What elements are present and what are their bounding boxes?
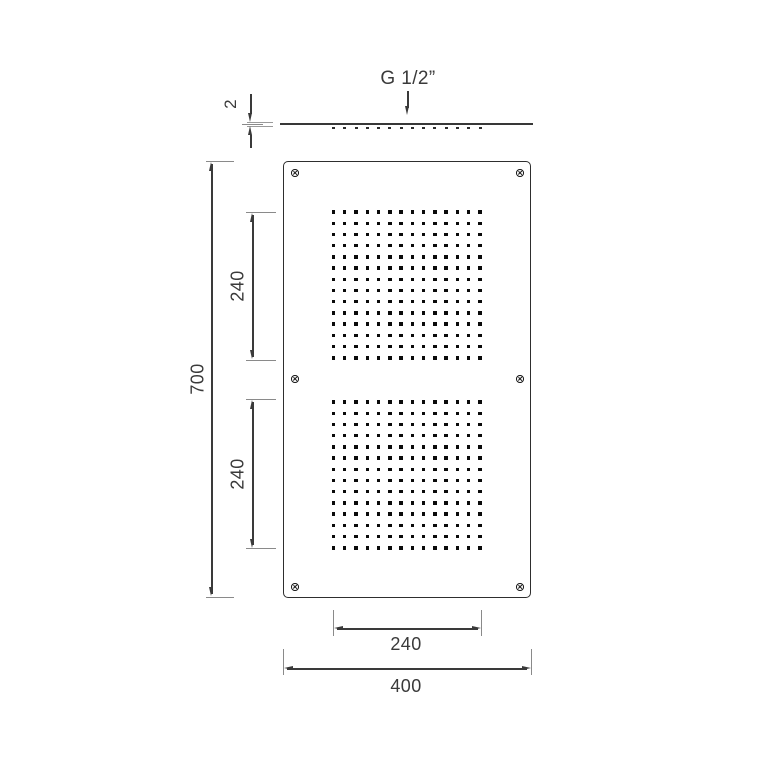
perforation-dot (377, 412, 380, 415)
perforation-dot (332, 222, 335, 225)
perforation-dot (433, 356, 436, 359)
perforation-dot (422, 300, 425, 303)
thickness-arrow-down-icon (248, 113, 252, 122)
perforation-dot (354, 210, 357, 213)
perforation-dot (354, 311, 357, 314)
perforation-dot (478, 479, 481, 482)
perforation-dot (354, 233, 357, 236)
perforation-dot (411, 512, 414, 515)
panel-bottom-tick-lower (246, 548, 276, 549)
panel-top-tick-lower (246, 360, 276, 361)
perforation-dot (467, 255, 470, 258)
height-arrow-down-icon (209, 587, 213, 596)
perforation-dot (377, 479, 380, 482)
perforation-dot (388, 345, 391, 348)
perforation-dot (433, 535, 436, 538)
perforation-dot (377, 490, 380, 493)
perforation-dot (456, 479, 459, 482)
perforation-dash (366, 127, 369, 129)
perforation-dot (444, 423, 447, 426)
perforation-dot (411, 501, 414, 504)
perforation-dot (444, 322, 447, 325)
perforation-dot (433, 468, 436, 471)
perforation-dot (467, 490, 470, 493)
perforation-dot (433, 490, 436, 493)
perforation-dot (422, 479, 425, 482)
perforation-dot (467, 289, 470, 292)
perforation-dot (354, 289, 357, 292)
perforation-dot (433, 278, 436, 281)
perforation-dot (377, 222, 380, 225)
perforation-dot (433, 334, 436, 337)
perforation-dash (445, 127, 448, 129)
panel-width-arrow-left-icon (334, 626, 343, 630)
perforation-dot (343, 434, 346, 437)
perforation-dot (467, 345, 470, 348)
perforation-dot (411, 334, 414, 337)
perforation-dot (456, 334, 459, 337)
perforation-dot (433, 210, 436, 213)
perforation-dot (332, 244, 335, 247)
perforation-dash (355, 127, 358, 129)
perforation-grid-bottom (332, 400, 482, 549)
perforation-dot (399, 311, 402, 314)
perforation-dot (467, 300, 470, 303)
perforation-dot (433, 546, 436, 549)
perforation-dot (478, 278, 481, 281)
perforation-dot (399, 456, 402, 459)
perforation-dot (478, 334, 481, 337)
perforation-dot (399, 524, 402, 527)
perforation-dot (422, 512, 425, 515)
perforation-dot (456, 322, 459, 325)
perforation-dot (478, 535, 481, 538)
perforation-dot (388, 255, 391, 258)
panel-width-arrow-right-icon (472, 626, 481, 630)
perforation-dot (399, 289, 402, 292)
perforation-dot (343, 468, 346, 471)
perforation-dot (444, 412, 447, 415)
perforation-dot (388, 412, 391, 415)
total-width-arrow-left-icon (284, 666, 293, 670)
perforation-dot (399, 210, 402, 213)
perforation-dash (422, 127, 425, 129)
screw-icon (291, 375, 299, 383)
perforation-dot (343, 266, 346, 269)
perforation-dot (354, 468, 357, 471)
perforation-dot (343, 233, 346, 236)
perforation-dot (388, 490, 391, 493)
perforation-dot (411, 400, 414, 403)
perforation-dot (433, 400, 436, 403)
perforation-dot (332, 278, 335, 281)
perforation-dot (399, 445, 402, 448)
perforation-dot (456, 512, 459, 515)
perforation-dot (399, 322, 402, 325)
perforation-dash (377, 127, 380, 129)
perforation-dot (478, 311, 481, 314)
perforation-dot (467, 512, 470, 515)
perforation-dot (377, 311, 380, 314)
perforation-dot (411, 456, 414, 459)
perforation-dot (456, 535, 459, 538)
perforation-dot (332, 512, 335, 515)
height-extension-tick-bottom (206, 597, 234, 598)
perforation-dot (343, 479, 346, 482)
perforation-dot (422, 311, 425, 314)
panel-top-height-label: 240 (228, 270, 249, 301)
perforation-dot (478, 289, 481, 292)
perforation-dot (467, 311, 470, 314)
perforation-dot (444, 255, 447, 258)
perforation-dot (399, 479, 402, 482)
perforation-dot (478, 300, 481, 303)
perforation-dot (422, 423, 425, 426)
perforation-dot (354, 501, 357, 504)
perforation-dot (467, 479, 470, 482)
perforation-dot (366, 535, 369, 538)
perforation-dot (411, 210, 414, 213)
perforation-dot (433, 501, 436, 504)
perforation-dot (467, 400, 470, 403)
perforation-dot (388, 456, 391, 459)
perforation-dot (456, 445, 459, 448)
thickness-dim-line-lower (250, 135, 251, 148)
perforation-dot (467, 356, 470, 359)
perforation-dot (478, 345, 481, 348)
thread-size-label: G 1/2” (380, 68, 435, 90)
perforation-dot (411, 222, 414, 225)
perforation-dot (366, 345, 369, 348)
perforation-dash (433, 127, 436, 129)
perforation-dot (467, 278, 470, 281)
perforation-dot (456, 278, 459, 281)
perforation-dot (444, 356, 447, 359)
perforation-dot (377, 266, 380, 269)
total-height-label: 700 (188, 363, 209, 394)
perforation-dot (444, 233, 447, 236)
perforation-dot (467, 456, 470, 459)
perforation-dot (354, 546, 357, 549)
perforation-dot (467, 233, 470, 236)
perforation-dot (444, 434, 447, 437)
perforation-dot (388, 244, 391, 247)
perforation-dot (366, 210, 369, 213)
perforation-dot (433, 423, 436, 426)
perforation-dot (444, 345, 447, 348)
perforation-dot (354, 400, 357, 403)
thread-leader-arrow-icon (405, 106, 409, 115)
perforation-dot (456, 400, 459, 403)
perforation-dot (444, 512, 447, 515)
perforation-dot (399, 255, 402, 258)
perforation-dot (343, 400, 346, 403)
total-width-label: 400 (390, 676, 421, 697)
perforation-dot (377, 278, 380, 281)
perforation-dot (377, 468, 380, 471)
perforation-dot (343, 334, 346, 337)
perforation-dot (456, 233, 459, 236)
perforation-dot (456, 345, 459, 348)
perforation-dot (433, 479, 436, 482)
perforation-dot (456, 289, 459, 292)
perforation-dot (444, 311, 447, 314)
perforation-dot (343, 546, 346, 549)
perforation-dot (377, 244, 380, 247)
perforation-dot (366, 356, 369, 359)
perforation-dot (354, 456, 357, 459)
perforation-dot (377, 546, 380, 549)
perforation-dot (411, 468, 414, 471)
perforation-dot (332, 546, 335, 549)
perforation-dot (377, 423, 380, 426)
perforation-dot (456, 456, 459, 459)
perforation-dot (366, 445, 369, 448)
perforation-dot (411, 423, 414, 426)
perforation-dot (366, 479, 369, 482)
perforation-dot (343, 535, 346, 538)
perforation-dot (366, 244, 369, 247)
perforation-dot (343, 300, 346, 303)
perforation-dot (388, 400, 391, 403)
panel-top-arrow-down-icon (250, 350, 254, 359)
panel-width-dim-line (337, 628, 478, 629)
perforation-dot (478, 244, 481, 247)
perforation-dot (354, 278, 357, 281)
perforation-dot (444, 546, 447, 549)
perforation-dot (366, 289, 369, 292)
perforation-dot (354, 356, 357, 359)
perforation-dot (366, 334, 369, 337)
perforation-dot (467, 423, 470, 426)
perforation-dot (332, 479, 335, 482)
perforation-dot (366, 468, 369, 471)
perforation-dot (433, 345, 436, 348)
perforation-dot (433, 322, 436, 325)
perforation-dot (456, 524, 459, 527)
screw-icon (516, 583, 524, 591)
perforation-dot (399, 423, 402, 426)
perforation-dot (422, 468, 425, 471)
perforation-dot (411, 490, 414, 493)
technical-drawing: G 1/2” 2 (0, 0, 772, 760)
perforation-dot (377, 501, 380, 504)
perforation-dot (433, 244, 436, 247)
perforation-dot (377, 356, 380, 359)
perforation-dot (366, 412, 369, 415)
perforation-dot (444, 501, 447, 504)
perforation-dot (444, 535, 447, 538)
perforation-dot (332, 412, 335, 415)
perforation-dot (388, 512, 391, 515)
perforation-dot (377, 445, 380, 448)
perforation-dot (456, 255, 459, 258)
perforation-dot (366, 222, 369, 225)
perforation-dot (332, 334, 335, 337)
perforation-dot (332, 300, 335, 303)
perforation-dot (467, 468, 470, 471)
perforation-dot (377, 210, 380, 213)
perforation-dot (444, 334, 447, 337)
perforation-dot (366, 233, 369, 236)
perforation-dot (332, 490, 335, 493)
perforation-dot (332, 468, 335, 471)
perforation-dot (332, 400, 335, 403)
perforation-dot (422, 345, 425, 348)
perforation-dot (399, 300, 402, 303)
total-width-dim-line (287, 668, 527, 669)
perforation-dot (433, 412, 436, 415)
perforation-dot (456, 501, 459, 504)
perforation-dot (444, 300, 447, 303)
perforation-dot (411, 244, 414, 247)
panel-top-dim-line (252, 215, 253, 357)
perforation-dot (388, 233, 391, 236)
perforation-dot (332, 289, 335, 292)
perforation-dot (388, 445, 391, 448)
perforation-dot (377, 334, 380, 337)
perforation-dot (433, 266, 436, 269)
perforation-dot (456, 546, 459, 549)
perforation-dot (467, 445, 470, 448)
perforation-dot (388, 278, 391, 281)
perforation-dot (343, 278, 346, 281)
perforation-dot (422, 255, 425, 258)
perforation-dot (422, 289, 425, 292)
panel-bottom-height-label: 240 (228, 458, 249, 489)
perforation-dash (400, 127, 403, 129)
perforation-dot (478, 400, 481, 403)
perforation-dot (399, 501, 402, 504)
perforation-dot (411, 434, 414, 437)
perforation-dot (377, 289, 380, 292)
perforation-dot (422, 233, 425, 236)
perforation-dashes (332, 127, 482, 130)
perforation-dot (411, 445, 414, 448)
perforation-dot (377, 345, 380, 348)
perforation-dot (343, 490, 346, 493)
thickness-extension-tick (242, 124, 263, 125)
perforation-dot (478, 266, 481, 269)
perforation-dot (354, 300, 357, 303)
perforation-dot (388, 210, 391, 213)
perforation-dot (399, 266, 402, 269)
perforation-dot (444, 479, 447, 482)
perforation-dot (343, 311, 346, 314)
perforation-dot (377, 322, 380, 325)
perforation-dot (388, 501, 391, 504)
perforation-dot (343, 501, 346, 504)
perforation-dot (456, 300, 459, 303)
perforation-dot (343, 210, 346, 213)
perforation-dot (366, 501, 369, 504)
perforation-dot (411, 345, 414, 348)
perforation-dot (478, 322, 481, 325)
perforation-dot (399, 278, 402, 281)
perforation-dot (399, 334, 402, 337)
perforation-dot (478, 412, 481, 415)
perforation-dot (422, 210, 425, 213)
perforation-dot (377, 400, 380, 403)
perforation-dot (467, 266, 470, 269)
perforation-dot (343, 423, 346, 426)
perforation-dot (456, 423, 459, 426)
panel-bottom-dim-line (252, 402, 253, 545)
perforation-dot (332, 266, 335, 269)
perforation-dot (366, 300, 369, 303)
perforation-dot (444, 445, 447, 448)
perforation-dot (433, 233, 436, 236)
perforation-dot (422, 278, 425, 281)
perforation-dot (399, 222, 402, 225)
perforation-dot (377, 300, 380, 303)
perforation-dot (332, 356, 335, 359)
perforation-dot (478, 456, 481, 459)
perforation-dot (399, 412, 402, 415)
perforation-dot (433, 456, 436, 459)
perforation-dot (366, 400, 369, 403)
perforation-dot (444, 210, 447, 213)
perforation-dot (467, 322, 470, 325)
perforation-dot (478, 501, 481, 504)
perforation-dot (354, 524, 357, 527)
perforation-dot (343, 222, 346, 225)
perforation-dot (332, 501, 335, 504)
perforation-dot (343, 345, 346, 348)
panel-width-tick-left (333, 610, 334, 636)
perforation-dot (422, 322, 425, 325)
total-width-arrow-right-icon (522, 666, 531, 670)
perforation-dot (388, 311, 391, 314)
perforation-dot (354, 535, 357, 538)
perforation-dot (433, 255, 436, 258)
perforation-dot (354, 266, 357, 269)
perforation-dot (377, 255, 380, 258)
perforation-dot (478, 490, 481, 493)
perforation-dot (444, 244, 447, 247)
perforation-dot (478, 222, 481, 225)
perforation-dot (354, 490, 357, 493)
perforation-dot (332, 434, 335, 437)
perforation-dot (388, 289, 391, 292)
perforation-dot (444, 289, 447, 292)
perforation-dot (467, 210, 470, 213)
perforation-dot (332, 423, 335, 426)
perforation-dot (467, 524, 470, 527)
perforation-dot (456, 434, 459, 437)
perforation-dot (388, 479, 391, 482)
perforation-dot (377, 535, 380, 538)
perforation-dot (332, 524, 335, 527)
perforation-dot (411, 311, 414, 314)
panel-top-arrow-up-icon (250, 213, 254, 222)
perforation-dot (388, 546, 391, 549)
perforation-dot (377, 456, 380, 459)
perforation-dash (343, 127, 346, 129)
perforation-dot (433, 222, 436, 225)
perforation-dot (478, 233, 481, 236)
perforation-dot (467, 412, 470, 415)
perforation-dot (354, 345, 357, 348)
perforation-dot (478, 210, 481, 213)
perforation-dot (422, 535, 425, 538)
perforation-dot (332, 233, 335, 236)
perforation-dot (366, 434, 369, 437)
perforation-dot (411, 255, 414, 258)
perforation-dot (366, 255, 369, 258)
perforation-dot (366, 423, 369, 426)
perforation-dot (399, 356, 402, 359)
